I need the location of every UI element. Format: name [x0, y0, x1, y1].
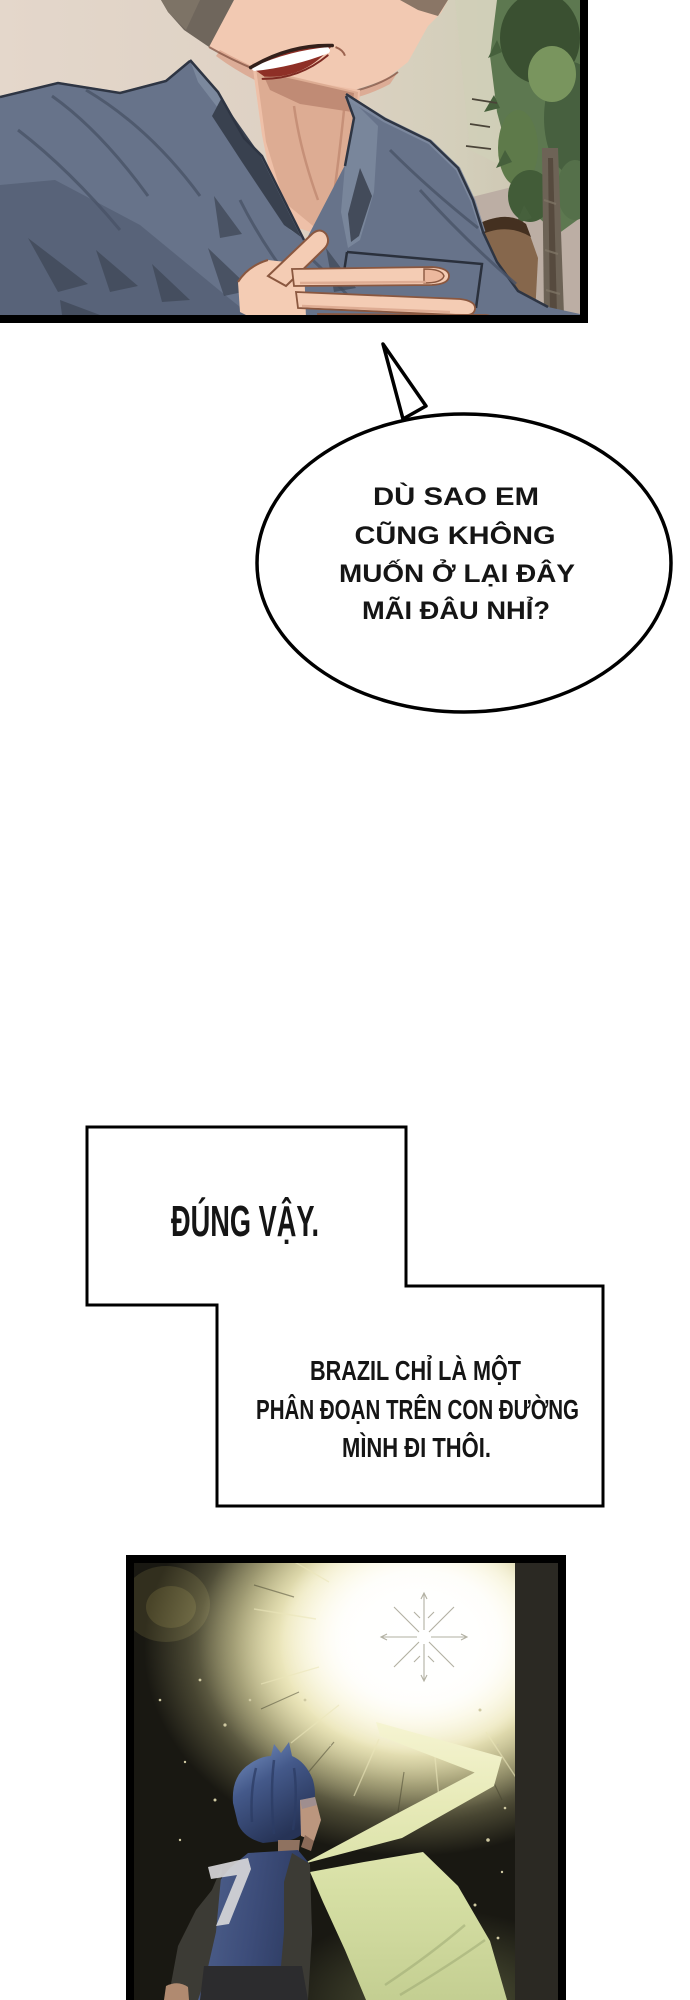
svg-text:MÃI ĐÂU NHỈ?: MÃI ĐÂU NHỈ?	[362, 595, 550, 625]
svg-text:DÙ SAO EM: DÙ SAO EM	[373, 481, 539, 511]
svg-text:MÌNH ĐI THÔI.: MÌNH ĐI THÔI.	[342, 1431, 491, 1463]
svg-text:ĐÚNG VẬY.: ĐÚNG VẬY.	[171, 1196, 319, 1246]
svg-text:PHÂN ĐOẠN TRÊN CON ĐƯỜNG: PHÂN ĐOẠN TRÊN CON ĐƯỜNG	[256, 1394, 579, 1425]
svg-text:MUỐN Ở LẠI ĐÂY: MUỐN Ở LẠI ĐÂY	[339, 558, 575, 588]
svg-text:BRAZIL CHỈ LÀ MỘT: BRAZIL CHỈ LÀ MỘT	[310, 1354, 521, 1386]
svg-text:CŨNG KHÔNG: CŨNG KHÔNG	[355, 520, 556, 550]
